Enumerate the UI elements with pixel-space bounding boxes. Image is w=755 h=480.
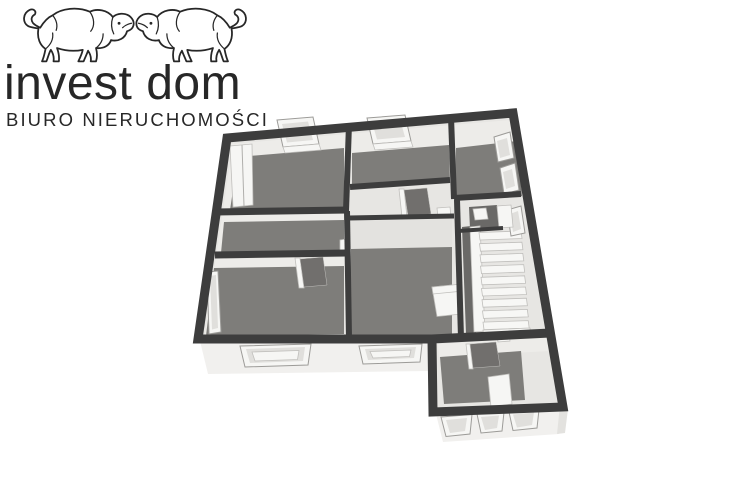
lion-icon-right	[136, 9, 246, 62]
lions-emblem	[6, 2, 264, 64]
brand-subtitle: BIURO NIERUCHOMOŚCI	[6, 111, 274, 130]
door-top-left-room	[230, 144, 253, 207]
door-annex-open-leaf	[488, 374, 512, 407]
logo: invest dom BIURO NIERUCHOMOŚCI	[4, 2, 274, 130]
door-bottom-left-room	[295, 257, 327, 288]
brand-name: invest dom	[4, 60, 274, 108]
stair-treads	[479, 231, 529, 330]
wc-fixture	[473, 208, 488, 220]
facade-window-right	[359, 344, 422, 364]
facade-window-left	[240, 344, 311, 367]
lion-icon-left	[24, 9, 134, 62]
door-wc	[497, 205, 513, 228]
image-canvas: invest dom BIURO NIERUCHOMOŚCI	[0, 0, 755, 480]
corridor-floor	[221, 220, 344, 253]
